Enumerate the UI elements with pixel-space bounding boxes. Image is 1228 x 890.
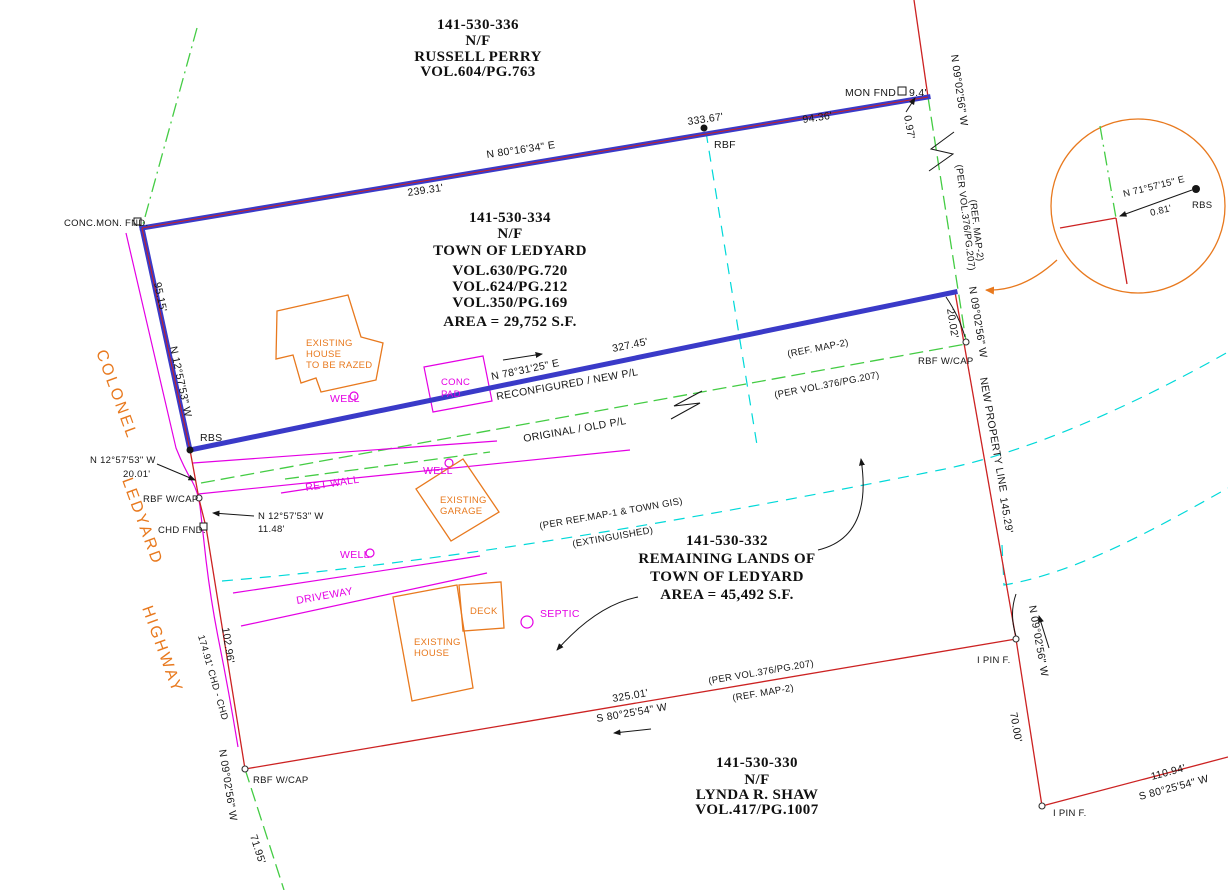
road-name-colonel: COLONEL (92, 348, 140, 442)
l332-line1: REMAINING LANDS OF (638, 551, 815, 567)
road-edge-line (126, 233, 238, 747)
detail-old-line (1100, 126, 1116, 218)
rbf-wcap2-label: RBF W/CAP (253, 775, 308, 786)
shaw-vol: VOL.417/PG.1007 (695, 802, 818, 818)
l332-area: AREA = 45,492 S.F. (660, 587, 794, 603)
monument-markers (134, 87, 1045, 809)
east-bearing-label: N 09°02'56" W (966, 286, 989, 359)
house1-label-1: EXISTING (306, 338, 353, 349)
south-per-label: (PER VOL.376/PG.207) (708, 658, 815, 687)
l334-area: AREA = 29,752 S.F. (443, 314, 577, 330)
bearing-arrow-newpl (503, 354, 542, 360)
corner-tie-label: 0.97' (901, 114, 917, 140)
house1-label-3: TO BE RAZED (306, 360, 372, 371)
south-bearing-label: S 80°25'54" W (595, 701, 668, 725)
gis-line-vertical (706, 132, 757, 445)
north-seg2-label: 333.67' (687, 111, 725, 128)
road-bearing-label: N 09°02'56" W (216, 749, 239, 822)
detail-distance: 0.81' (1149, 203, 1173, 219)
conc-mon-label: CONC.MON. FND. (64, 218, 148, 229)
bearing-ne-label: N 09°02'56" W (948, 54, 970, 127)
garage-label-1: EXISTING (440, 495, 487, 506)
gis-per-label: (PER REF.MAP-1 & TOWN GIS) (539, 496, 684, 532)
house1-label-2: HOUSE (306, 349, 341, 360)
mon-fnd-square (898, 87, 906, 95)
leader-arrows (157, 98, 1049, 733)
south-boundary-line (245, 639, 1016, 769)
tie2-bearing-label: N 12°57'53" W (258, 511, 324, 522)
oldpl-per-label: (PER VOL.376/PG.207) (773, 370, 880, 401)
east-line-north-stub (914, 0, 928, 97)
l334-vol3: VOL.350/PG.169 (452, 295, 567, 311)
garage-label-2: GARAGE (440, 506, 482, 517)
l334-apn: 141-530-334 (469, 210, 551, 226)
old-line-northwest (142, 28, 197, 228)
road-dist2-label: 71.95' (247, 833, 268, 865)
conc-pad-label-2: PAD (441, 389, 461, 400)
l334-vol2: VOL.624/PG.212 (452, 279, 567, 295)
survey-plat-drawing: N 71°57'15" E 0.81' RBS MON FND 9.4' 0.9… (0, 0, 1228, 890)
old-line-southwest (245, 769, 284, 890)
rbf-wcap1-label: RBF W/CAP (143, 494, 198, 505)
rbf-wcap-pin-south (242, 766, 248, 772)
shaw-nf: N/F (744, 772, 769, 788)
ipin-2 (1039, 803, 1045, 809)
rbs-point (187, 447, 194, 454)
well-label-2: WELL (423, 465, 453, 477)
l334-vol1: VOL.630/PG.720 (452, 263, 567, 279)
tie1-bearing-label: N 12°57'53" W (90, 455, 156, 466)
chd-fnd-label: CHD FND. (158, 525, 206, 536)
oldpl-label: ORIGINAL / OLD P/L (522, 415, 627, 445)
survey-plat-page: N 71°57'15" E 0.81' RBS MON FND 9.4' 0.9… (0, 0, 1228, 890)
gis-status-label: (EXTINGUISHED) (572, 525, 654, 550)
bearing-arrow-south (614, 729, 651, 733)
house2-label-2: HOUSE (414, 648, 449, 659)
leader-tie-2001 (157, 464, 195, 480)
perry-nf: N/F (465, 33, 490, 49)
break-symbol-northeast (929, 132, 954, 171)
detail-leader-arrow (986, 260, 1057, 290)
house2-label-1: EXISTING (414, 637, 461, 648)
detail-red-line-1 (1060, 218, 1116, 228)
parcel-block-perry: 141-530-336 N/F RUSSELL PERRY VOL.604/PG… (414, 17, 542, 80)
ipin1-label: I PIN F. (977, 655, 1011, 666)
mon-tie-label: 9.4' (909, 87, 927, 99)
perry-owner: RUSSELL PERRY (414, 49, 542, 65)
gis-line-lower (1002, 488, 1228, 585)
rbf-wcap-east-label: RBF W/CAP (918, 356, 973, 367)
shaw-apn: 141-530-330 (716, 755, 798, 771)
septic-symbol (521, 616, 533, 628)
leader-parcel332-up (818, 459, 863, 550)
east-dist2-label: 70.00' (1007, 711, 1024, 743)
driveway-edge-2 (241, 573, 487, 626)
road-name-ledyard: LEDYARD (118, 476, 165, 568)
l334-owner: TOWN OF LEDYARD (433, 243, 587, 259)
leader-parcel332-down (557, 597, 638, 650)
rbf-label: RBF (714, 139, 736, 151)
west-bearing-label: N 12°57'53" W (167, 345, 194, 418)
oldpl-ref-label: (REF. MAP-2) (786, 337, 849, 360)
north-seg3-label: 94.36' (802, 110, 834, 126)
l334-nf: N/F (497, 226, 522, 242)
deck-label: DECK (470, 606, 498, 617)
septic-label: SEPTIC (540, 608, 580, 620)
ipin-1 (1013, 636, 1019, 642)
rbf-wcap-pin-east (963, 339, 969, 345)
detail-rbs-point (1192, 185, 1200, 193)
gis-lines (222, 132, 1228, 585)
parcel-block-ledyard332: 141-530-332 REMAINING LANDS OF TOWN OF L… (638, 533, 815, 603)
l332-line2: TOWN OF LEDYARD (650, 569, 804, 585)
well-label-3: WELL (340, 549, 370, 561)
new-property-line-label: NEW PROPERTY LINE (977, 376, 1009, 492)
parcel-block-shaw: 141-530-330 N/F LYNDA R. SHAW VOL.417/PG… (695, 755, 818, 818)
ipin2-label: I PIN F. (1053, 808, 1087, 819)
leader-ipin (1013, 594, 1017, 636)
east-dist-label: 145.29' (997, 496, 1015, 534)
shaw-owner: LYNDA R. SHAW (696, 787, 819, 803)
parcel-block-ledyard334: 141-530-334 N/F TOWN OF LEDYARD VOL.630/… (433, 210, 587, 330)
perry-apn: 141-530-336 (437, 17, 519, 33)
rbs-label: RBS (200, 432, 223, 444)
detail-red-line-2 (1116, 218, 1127, 284)
well-label-1: WELL (330, 393, 360, 405)
tie2-dist-label: 11.48' (258, 524, 285, 535)
road-name-highway: HIGHWAY (138, 604, 185, 696)
conc-pad-label-1: CONC (441, 377, 470, 388)
west-dist-label: 95.15' (151, 281, 169, 313)
mon-fnd-label: MON FND (845, 87, 896, 99)
detail-circle: N 71°57'15" E 0.81' RBS (986, 119, 1225, 293)
ret-wall-label: RET WALL (305, 474, 361, 494)
perry-vol: VOL.604/PG.763 (420, 64, 535, 80)
l332-apn: 141-530-332 (686, 533, 768, 549)
detail-rbs-label: RBS (1192, 200, 1212, 211)
newpl-dist-label: 327.45' (611, 336, 649, 355)
north-bearing-label: N 80°16'34" E (486, 139, 556, 161)
leader-tie-1148 (213, 513, 254, 516)
